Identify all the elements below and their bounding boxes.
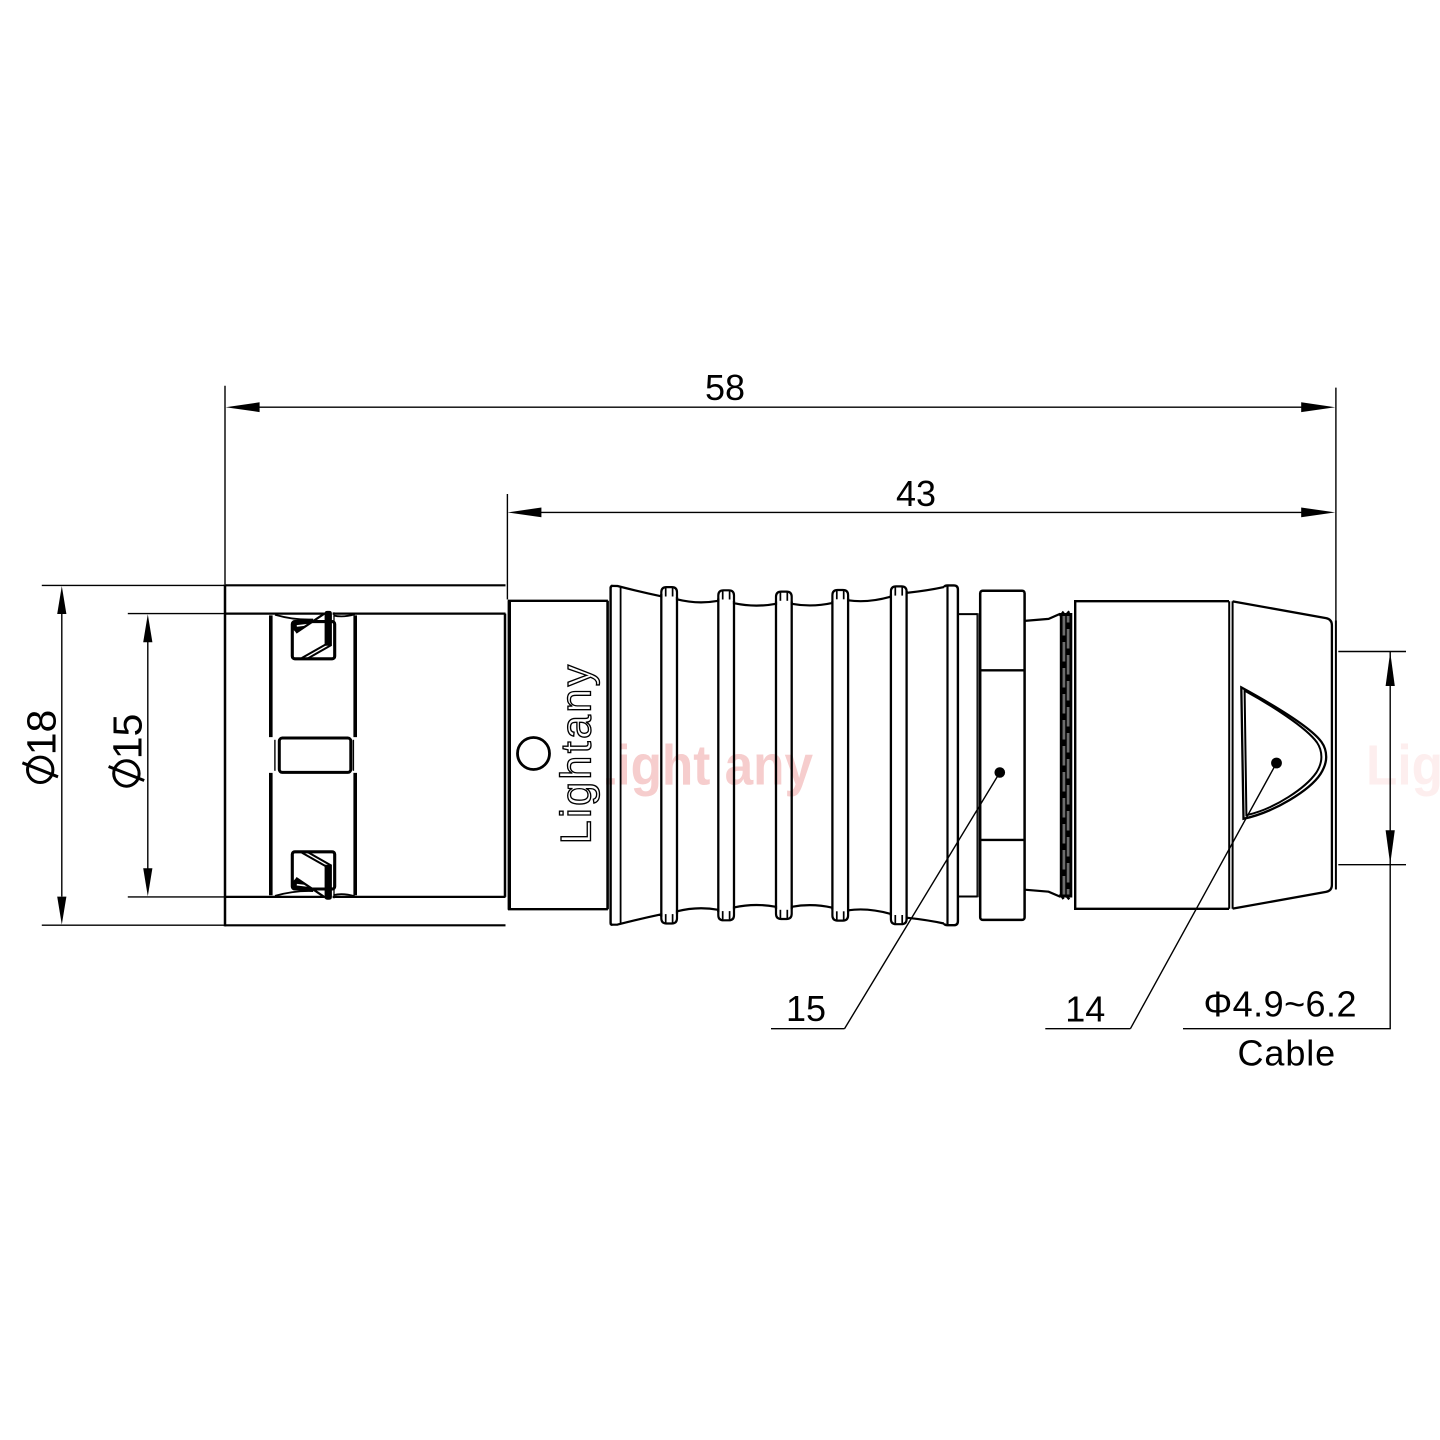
svg-text:Cable: Cable [1238,1033,1337,1074]
svg-text:18: 18 [18,710,64,756]
svg-text:Light any: Light any [1366,734,1440,797]
svg-text:58: 58 [705,367,745,408]
svg-text:Light any: Light any [585,734,813,797]
svg-text:15: 15 [105,714,151,760]
svg-text:14: 14 [1065,989,1105,1030]
svg-text:15: 15 [786,988,826,1029]
svg-text:Lightany: Lightany [553,662,601,844]
svg-text:Φ4.9~6.2: Φ4.9~6.2 [1204,984,1357,1025]
svg-text:43: 43 [896,473,936,514]
